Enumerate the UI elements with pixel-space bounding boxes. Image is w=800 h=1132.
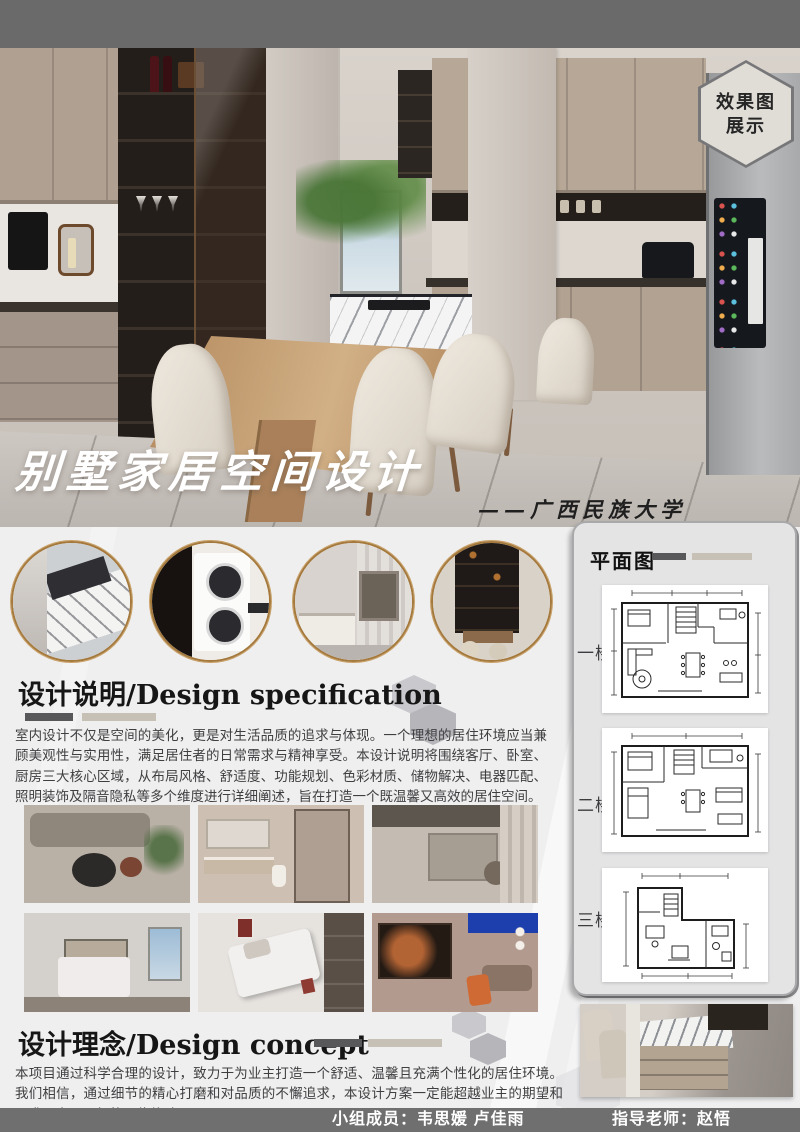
- poster-title: 别墅家居空间设计: [14, 436, 426, 500]
- hexagon-decor: [452, 1009, 486, 1039]
- vanity-mirror: [206, 819, 270, 849]
- gallery-photo-bedroom-front: [24, 913, 190, 1012]
- wine-bottle: [150, 56, 159, 92]
- plant-decor: [144, 825, 184, 885]
- circle-photo-hallway: [293, 541, 414, 662]
- gallery-photo-bathroom: [198, 805, 364, 903]
- vanity-counter: [204, 857, 274, 874]
- hero-kitchen-render: 效果图 展示 别墅家居空间设计 ——广西民族大学: [0, 48, 800, 527]
- washer-door: [206, 607, 244, 645]
- spec-bar-dark: [25, 713, 73, 721]
- footer-members: 小组成员：韦思媛 卢佳雨: [332, 1108, 524, 1132]
- effect-badge-line1: 效果图: [716, 90, 776, 114]
- dark-appliance: [708, 1004, 768, 1030]
- wall-art: [236, 917, 254, 939]
- sink-counter: [248, 603, 269, 613]
- round-coffee-table: [72, 853, 116, 887]
- poster-subtitle: ——广西民族大学: [478, 494, 686, 524]
- shelf-jar: [576, 200, 585, 213]
- footer-bar: 小组成员：韦思媛 卢佳雨 指导老师：赵悟: [0, 1108, 800, 1132]
- gallery-photo-bedroom-top: [372, 805, 538, 903]
- rice-cooker: [642, 242, 694, 278]
- gallery-photo-living-room: [24, 805, 190, 903]
- dark-column: [152, 543, 192, 660]
- floorplan-3f-drawing: [602, 868, 768, 982]
- concept-bar-dark: [314, 1039, 362, 1047]
- floorplan-1f: [602, 585, 768, 713]
- window: [148, 927, 182, 981]
- white-column: [626, 1004, 640, 1097]
- island-hob: [368, 300, 430, 310]
- left-countertop: [0, 302, 120, 312]
- floorplan-2f: [602, 728, 768, 852]
- left-lower-cabinets: [0, 312, 120, 422]
- wardrobe: [324, 913, 364, 1012]
- ball-floor-lamp: [514, 925, 526, 959]
- floorplan-2f-drawing: [602, 728, 768, 852]
- fridge-screen-panel: [748, 238, 763, 324]
- spec-body: 室内设计不仅是空间的美化，更是对生活品质的追求与体现。一个理想的居住环境应当兼顾…: [15, 726, 547, 807]
- circle-photo-wine-bar: [431, 541, 552, 662]
- side-table: [120, 857, 142, 877]
- shower-glass: [294, 809, 350, 903]
- dining-chair: [598, 1029, 629, 1079]
- bed-duvet: [58, 957, 130, 997]
- stone-floor: [295, 645, 412, 660]
- poster-page: 效果图 展示 别墅家居空间设计 ——广西民族大学: [0, 0, 800, 1132]
- spec-heading: 设计说明/Design specification: [18, 673, 442, 712]
- candle-decor: [68, 238, 76, 268]
- circle-photo-laundry: [150, 541, 271, 662]
- wood-floor: [24, 997, 190, 1012]
- top-gray-bar: [0, 0, 800, 50]
- floorplan-bar-beige: [692, 553, 752, 560]
- blue-ceiling: [468, 913, 538, 933]
- gallery-photo-bedroom-angle: [198, 913, 364, 1012]
- island-drawers: [640, 1046, 728, 1090]
- hall-cabinet: [299, 613, 355, 648]
- circle-photo-marble-island: [11, 541, 132, 662]
- lantern-decor: [58, 224, 94, 276]
- bar-stool: [489, 643, 507, 660]
- effect-badge-line2: 展示: [726, 114, 766, 138]
- orange-chair: [466, 974, 492, 1007]
- island-detail-photo: [580, 1004, 793, 1097]
- concept-bar-beige: [368, 1039, 442, 1047]
- floorplan-title: 平面图: [590, 545, 656, 574]
- floor-edge: [13, 543, 47, 660]
- ribbed-wall: [500, 805, 538, 903]
- shelf-jar: [560, 200, 569, 213]
- shelf-jar: [592, 200, 601, 213]
- projection-screen: [378, 923, 452, 979]
- art-frame: [359, 571, 399, 621]
- footer-advisor: 指导老师：赵悟: [612, 1108, 731, 1132]
- red-throw: [301, 978, 316, 994]
- coffee-machine: [8, 212, 48, 270]
- bar-stool: [461, 641, 479, 659]
- toilet: [272, 865, 286, 887]
- floorplan-panel: 平面图 一楼: [572, 521, 797, 996]
- floorplan-1f-drawing: [602, 585, 768, 713]
- dryer-door: [206, 563, 244, 601]
- wine-bottle: [163, 56, 172, 92]
- spec-bar-beige: [82, 713, 156, 721]
- sofa-top-view: [30, 813, 150, 847]
- wine-cabinet: [455, 543, 519, 633]
- gallery-photo-media-room: [372, 913, 538, 1012]
- floorplan-bar-dark: [652, 553, 686, 560]
- floorplan-3f: [602, 868, 768, 982]
